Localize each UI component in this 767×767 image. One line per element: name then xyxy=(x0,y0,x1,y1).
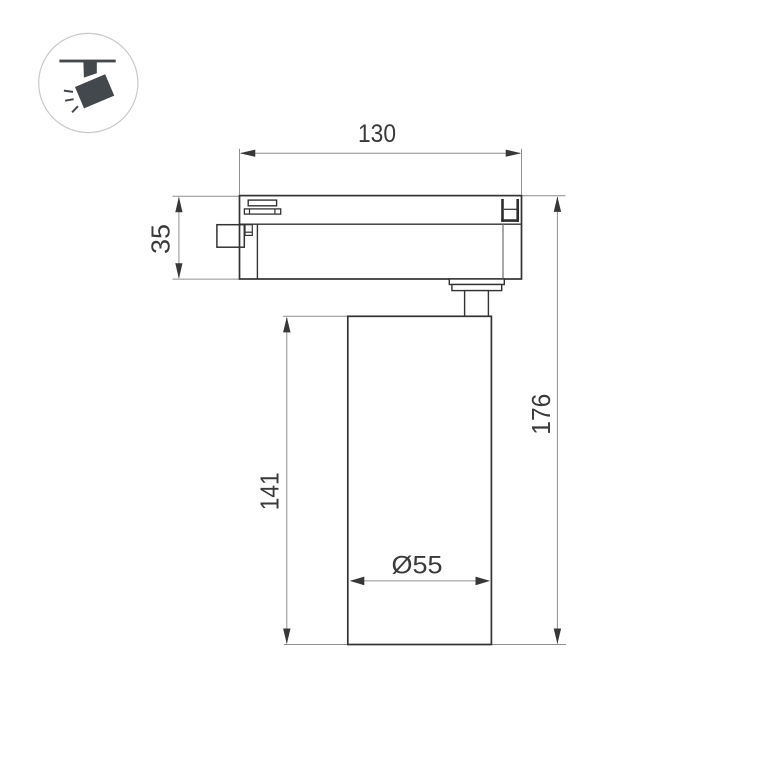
svg-text:Ø55: Ø55 xyxy=(392,552,443,580)
svg-text:35: 35 xyxy=(145,224,175,254)
svg-text:130: 130 xyxy=(358,120,396,148)
svg-text:176: 176 xyxy=(526,394,556,435)
svg-text:141: 141 xyxy=(255,472,285,510)
